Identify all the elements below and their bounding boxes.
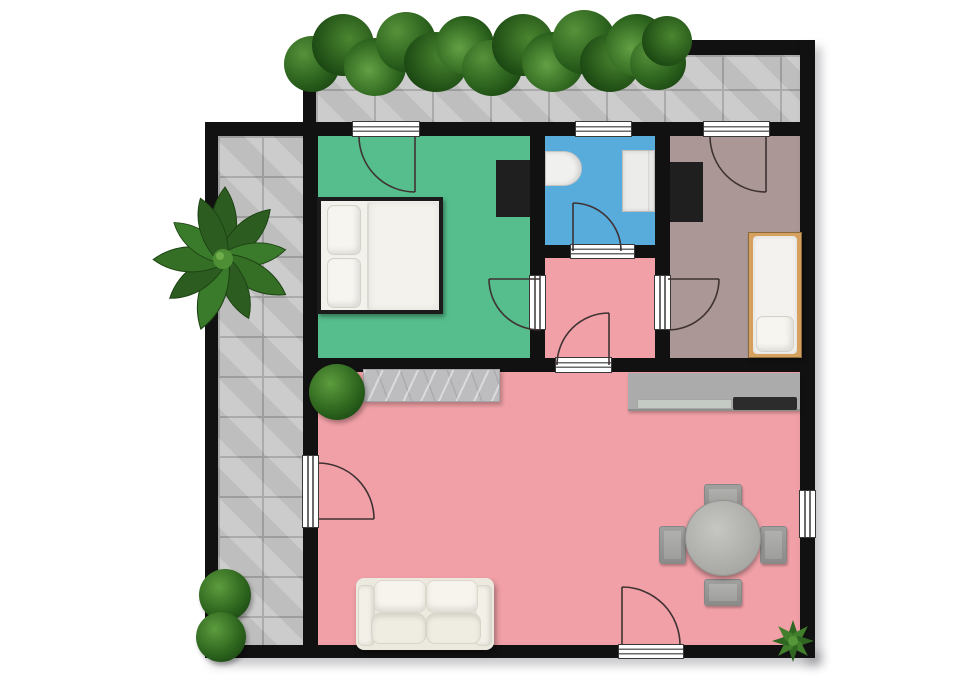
sofa-seat-cushion-1 bbox=[371, 613, 426, 644]
shower-unit bbox=[622, 150, 655, 212]
dining-chair-bottom bbox=[704, 579, 742, 606]
dining-chair-right bbox=[760, 526, 787, 564]
door-frame-living-terrace bbox=[302, 455, 319, 528]
door-frame-hall-living bbox=[555, 357, 612, 373]
kitchen-sink bbox=[637, 399, 732, 409]
single-bed-pillow bbox=[756, 316, 794, 352]
door-frame-hall-bedroom bbox=[529, 275, 546, 330]
dining-chair-left bbox=[659, 526, 686, 564]
door-frame-bedroom2-balcony bbox=[703, 121, 770, 137]
double-bed-pillow-2 bbox=[327, 258, 361, 308]
wall-outer-bottom bbox=[205, 645, 815, 658]
hallway-floor bbox=[545, 258, 655, 358]
kitchen-stove bbox=[733, 397, 797, 410]
double-bed-pillow-1 bbox=[327, 205, 361, 255]
window-living-right bbox=[799, 490, 816, 538]
door-frame-entrance bbox=[618, 644, 684, 659]
sofa-back-cushion-2 bbox=[426, 580, 478, 613]
door-frame-hall-bathroom bbox=[570, 244, 635, 259]
round-bush-terrace-2 bbox=[196, 612, 246, 662]
door-frame-hall-bedroom2 bbox=[654, 275, 671, 330]
dining-table bbox=[685, 500, 761, 576]
round-bush-living-room bbox=[309, 364, 365, 420]
sofa-seat-cushion-2 bbox=[426, 613, 481, 644]
floor-plan-canvas bbox=[0, 0, 960, 679]
wardrobe-bedroom-master bbox=[496, 160, 530, 217]
corner-plant bbox=[770, 618, 816, 664]
hedge-plant bbox=[642, 16, 692, 66]
double-bed-blanket bbox=[367, 202, 439, 310]
toilet bbox=[545, 151, 582, 186]
window-bathroom bbox=[575, 121, 632, 137]
door-frame-bedroom-balcony bbox=[352, 121, 420, 137]
sofa-back-cushion-1 bbox=[374, 580, 426, 613]
wardrobe-bedroom-single bbox=[670, 162, 703, 222]
large-leaf-plant bbox=[148, 183, 298, 335]
marble-sideboard bbox=[363, 369, 500, 402]
